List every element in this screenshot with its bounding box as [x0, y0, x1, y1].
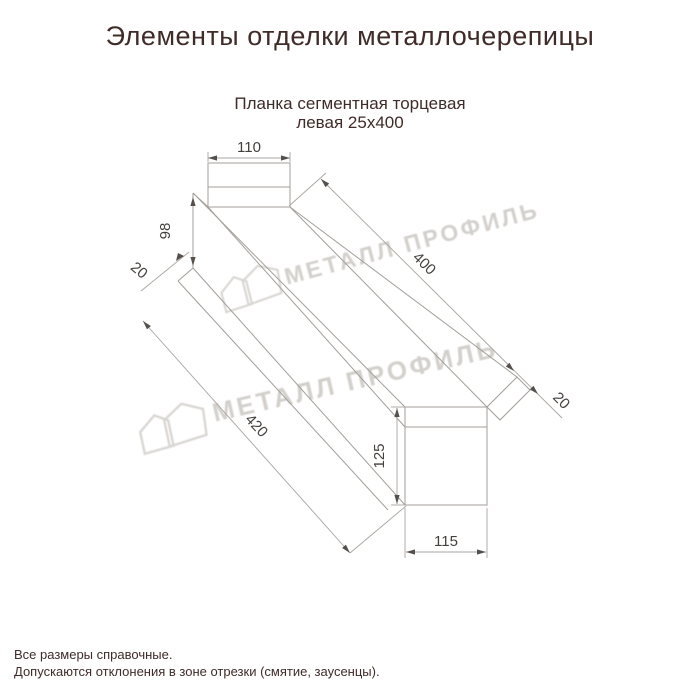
dim-label-end-width: 115 [434, 533, 458, 550]
dim-label-face-length: 400 [409, 249, 439, 279]
dim-label-web-height: 98 [157, 223, 174, 240]
flashing-outline [178, 163, 530, 510]
dimension-lines [141, 152, 562, 558]
footer-note-2: Допускаются отклонения в зоне отрезки (с… [14, 664, 380, 679]
drawing-page: Элементы отделки металлочерепицы Планка … [0, 0, 700, 700]
technical-drawing: 110 98 20 400 420 20 125 115 [0, 0, 700, 700]
dim-label-top-hem: 20 [127, 259, 151, 283]
dim-label-end-height: 125 [371, 443, 388, 468]
footer-note-1: Все размеры справочные. [14, 647, 172, 662]
dim-label-top-width: 110 [237, 139, 261, 156]
